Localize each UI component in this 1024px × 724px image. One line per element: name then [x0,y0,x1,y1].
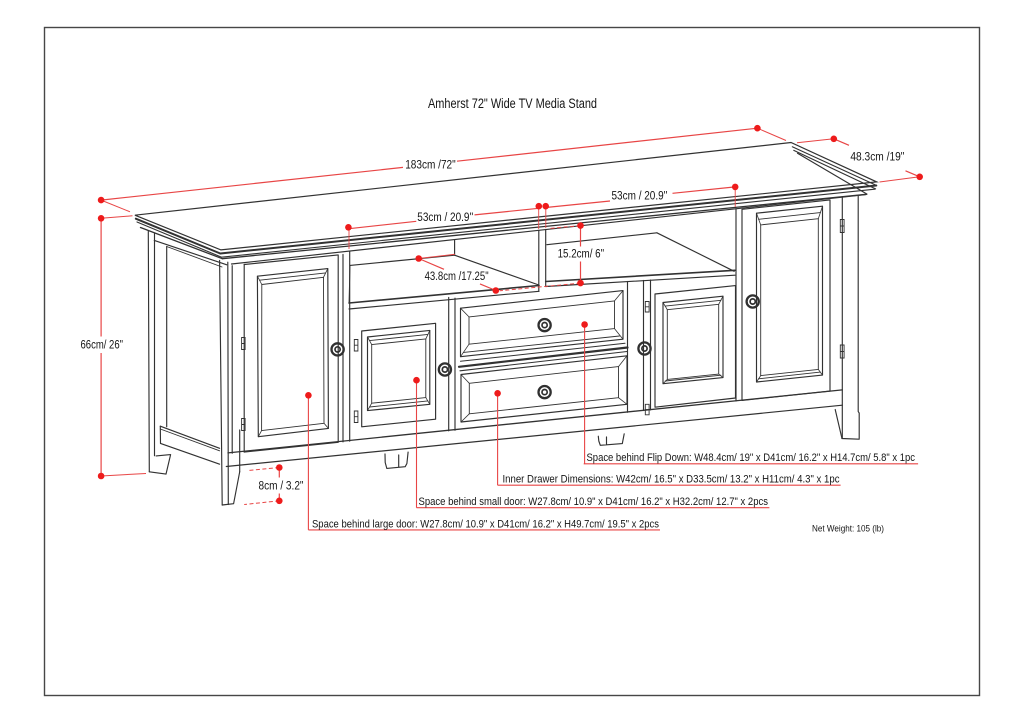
svg-text:8cm / 3.2": 8cm / 3.2" [259,481,304,493]
svg-text:183cm /72": 183cm /72" [405,159,456,171]
svg-text:43.8cm /17.25": 43.8cm /17.25" [425,271,489,283]
svg-text:66cm/ 26": 66cm/ 26" [81,340,124,352]
svg-text:Amherst 72" Wide TV Media Stan: Amherst 72" Wide TV Media Stand [428,96,597,112]
svg-text:Space behind large door: W27.8: Space behind large door: W27.8cm/ 10.9" … [312,519,659,531]
svg-text:53cm / 20.9'': 53cm / 20.9'' [612,191,668,203]
svg-text:53cm / 20.9'': 53cm / 20.9'' [417,212,473,224]
svg-text:Inner Drawer Dimensions: W42cm: Inner Drawer Dimensions: W42cm/ 16.5" x … [503,474,840,486]
svg-text:Space behind Flip Down: W48.4c: Space behind Flip Down: W48.4cm/ 19" x D… [587,452,916,464]
svg-text:15.2cm/ 6": 15.2cm/ 6" [558,249,605,261]
svg-text:48.3cm /19": 48.3cm /19" [850,152,904,164]
svg-text:Net Weight: 105 (lb): Net Weight: 105 (lb) [812,524,884,535]
svg-text:Space behind small door: W27.8: Space behind small door: W27.8cm/ 10.9" … [419,496,769,508]
